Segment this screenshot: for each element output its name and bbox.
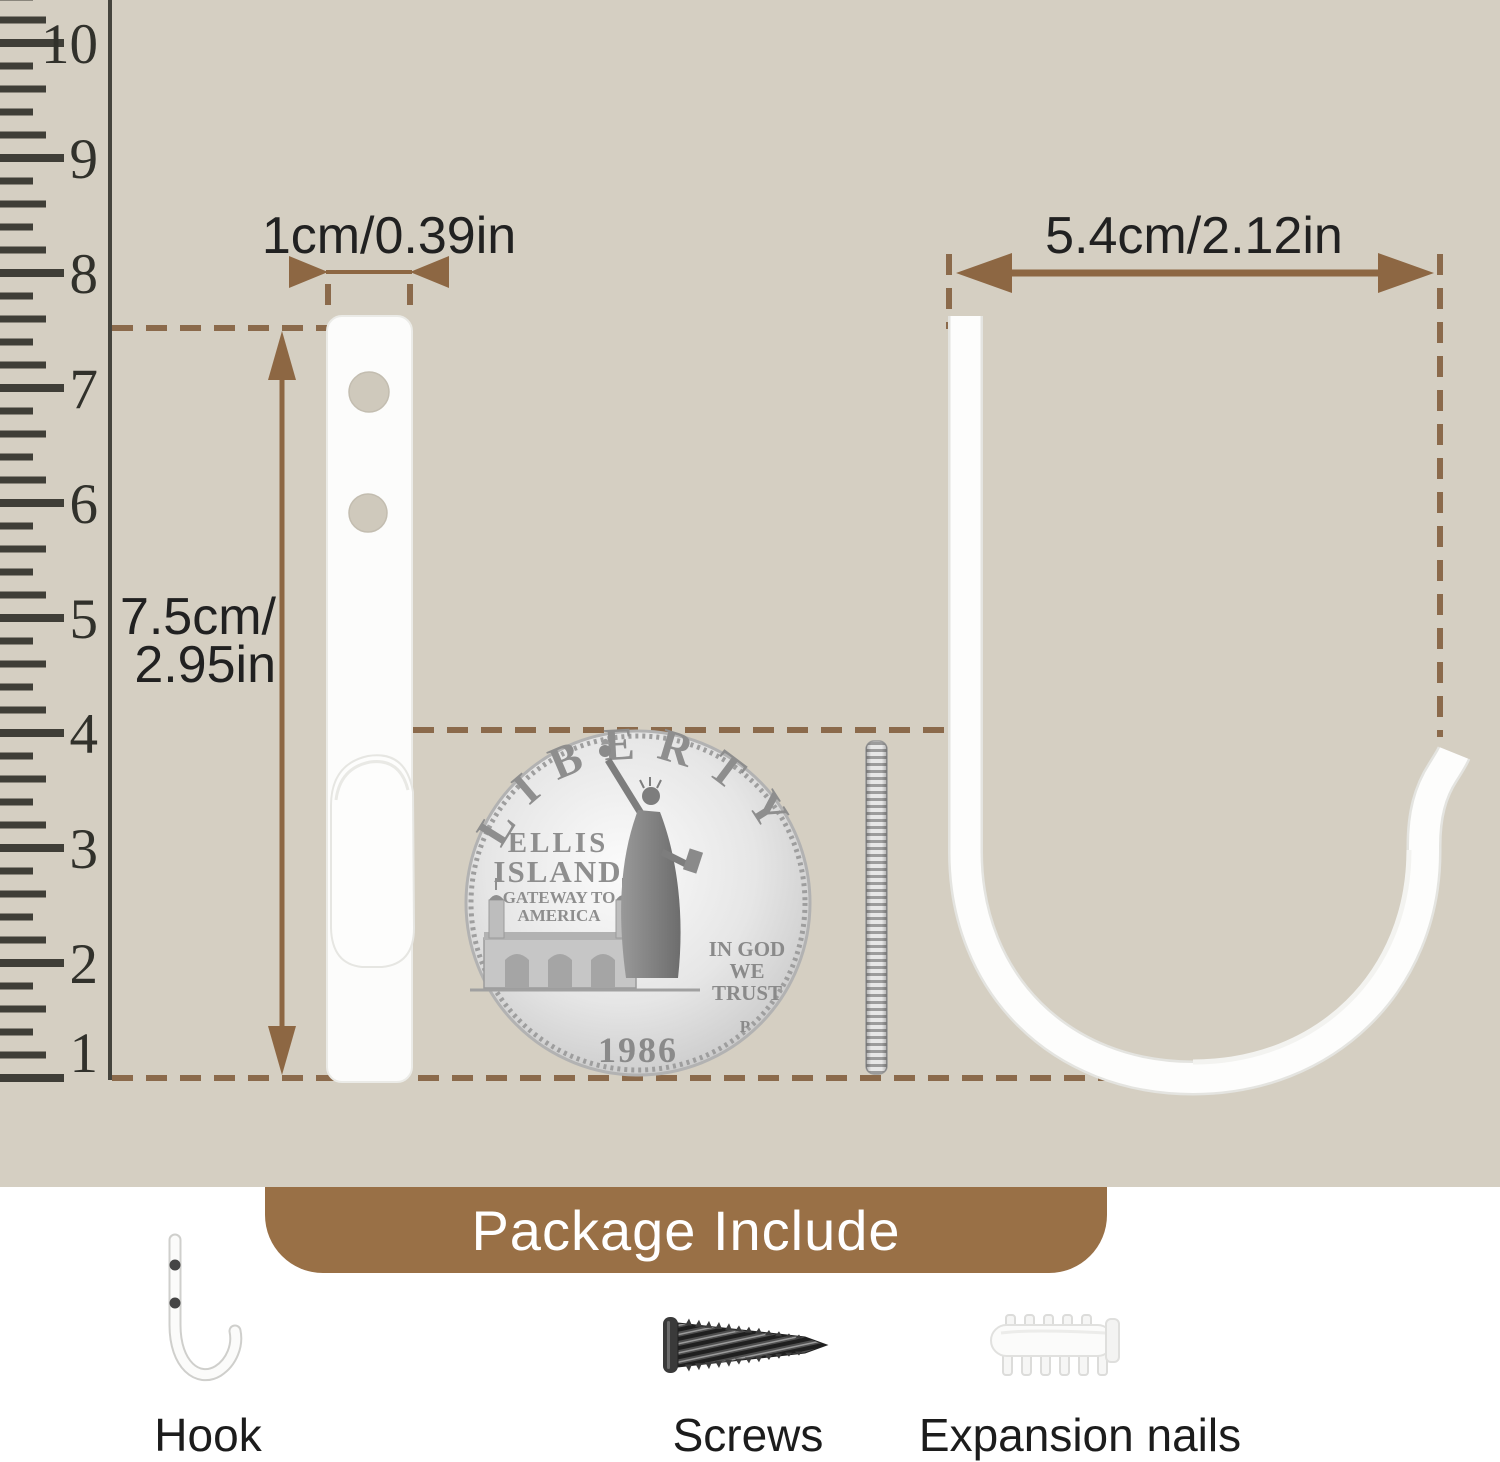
small-hook-front-image (327, 316, 414, 1082)
ruler-number: 4 (70, 703, 99, 766)
package-item-label-expansion-nails: Expansion nails (919, 1408, 1241, 1462)
small-width-label: 1cm/0.39in (262, 207, 516, 265)
ruler-number: 3 (70, 818, 99, 881)
dimension-diagram: 10 9 8 7 6 5 4 3 2 1 (0, 0, 1500, 1187)
coin-text: ISLAND (493, 854, 622, 889)
coin-edge-image (866, 741, 887, 1074)
coin-text: GATEWAY TO (503, 888, 616, 907)
ruler-number: 7 (70, 358, 99, 421)
ruler-number: 9 (70, 128, 99, 191)
package-include-title: Package Include (471, 1198, 900, 1263)
package-include-section: Package Include (0, 1187, 1500, 1462)
hook-bend-front (331, 755, 414, 967)
ruler-number: 6 (70, 473, 99, 536)
ruler-number: 1 (70, 1022, 99, 1085)
ruler-number: 5 (70, 588, 99, 651)
coin-text: AMERICA (517, 906, 601, 925)
height-label-line2: 2.95in (134, 636, 276, 694)
coin-motto: IN GOD (709, 937, 785, 961)
package-item-label-screws: Screws (673, 1408, 824, 1462)
coin-mint-mark: P (740, 1017, 750, 1036)
coin-front-image: LIBERTY ELLIS ISLAND GATEWAY TO AMERICA (466, 717, 810, 1075)
package-hook-icon (148, 1225, 268, 1405)
coin-motto: WE (729, 959, 764, 983)
screw-hole (349, 372, 389, 412)
coin-year: 1986 (598, 1030, 678, 1070)
package-item-label-hook: Hook (154, 1408, 261, 1462)
package-include-tab: Package Include (265, 1187, 1107, 1273)
large-width-label: 5.4cm/2.12in (1045, 207, 1343, 265)
package-expansion-nail-icon (975, 1295, 1145, 1395)
product-dimension-infographic: 10 9 8 7 6 5 4 3 2 1 (0, 0, 1500, 1462)
ruler-number: 10 (41, 13, 98, 76)
ruler-number: 8 (70, 243, 99, 306)
ruler-number: 2 (70, 933, 99, 996)
package-screw-icon (655, 1305, 845, 1385)
screw-hole (349, 494, 387, 532)
coin-motto: TRUST (712, 981, 782, 1005)
ruler: 10 9 8 7 6 5 4 3 2 1 (0, 0, 112, 1085)
